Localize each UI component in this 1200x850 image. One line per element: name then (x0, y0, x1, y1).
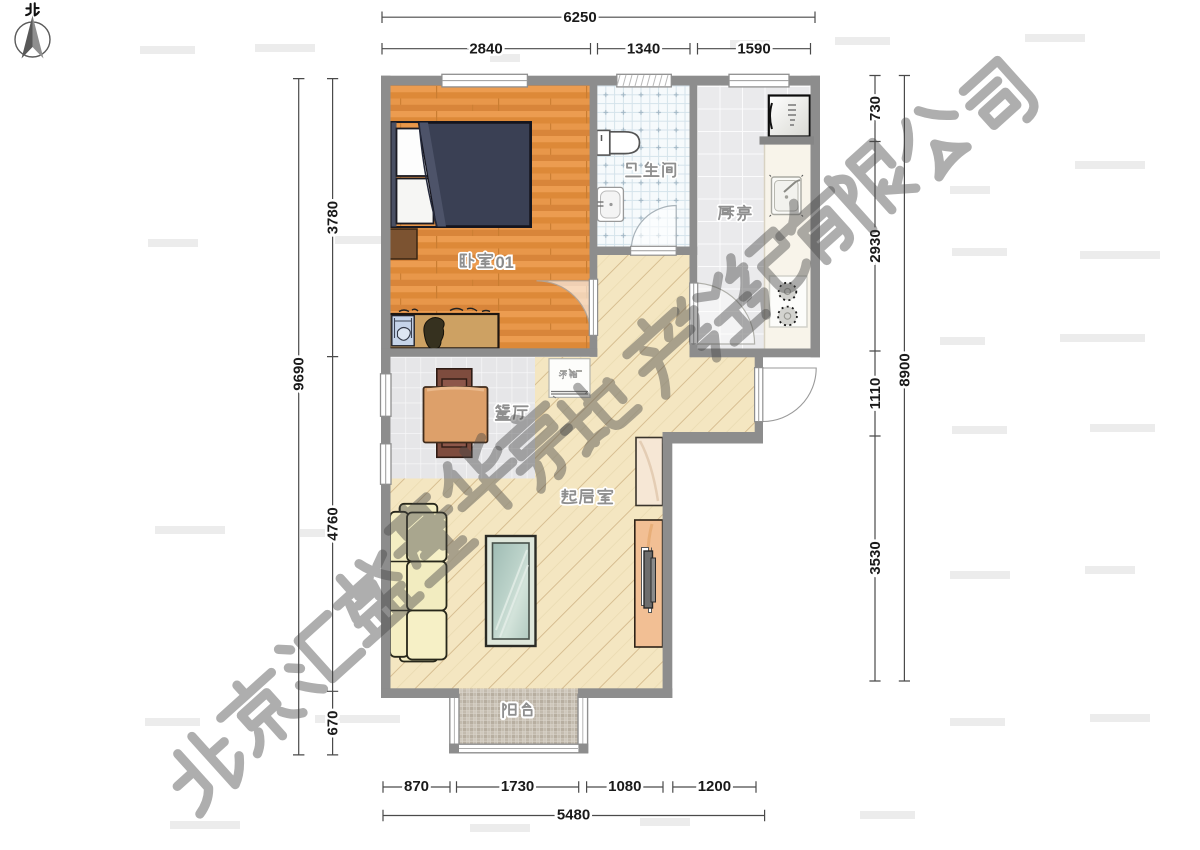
svg-text:01: 01 (496, 254, 514, 272)
svg-text:3530: 3530 (867, 541, 884, 574)
svg-text:670: 670 (325, 710, 342, 735)
svg-text:1340: 1340 (627, 41, 660, 58)
svg-text:6250: 6250 (563, 9, 596, 26)
svg-text:1080: 1080 (608, 778, 641, 795)
svg-text:1590: 1590 (737, 41, 770, 58)
svg-text:9690: 9690 (291, 357, 308, 390)
svg-text:2930: 2930 (867, 229, 884, 262)
svg-text:3780: 3780 (325, 201, 342, 234)
svg-text:1730: 1730 (501, 778, 534, 795)
svg-text:5480: 5480 (557, 807, 590, 824)
svg-text:1200: 1200 (698, 778, 731, 795)
svg-text:1110: 1110 (867, 378, 884, 410)
svg-text:730: 730 (867, 96, 884, 121)
svg-text:4760: 4760 (325, 507, 342, 540)
svg-text:2840: 2840 (469, 41, 502, 58)
svg-text:8900: 8900 (896, 353, 913, 386)
svg-text:870: 870 (404, 778, 429, 795)
